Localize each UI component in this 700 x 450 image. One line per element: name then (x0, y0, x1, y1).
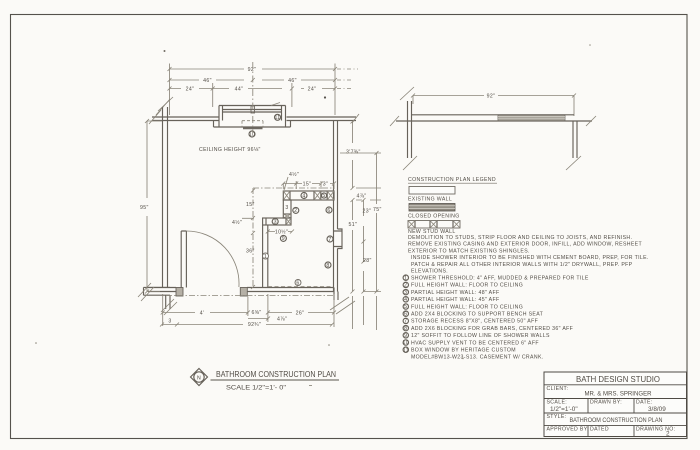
svg-text:15": 15" (303, 181, 312, 187)
svg-text:8: 8 (326, 263, 329, 269)
svg-text:DATE:: DATE: (636, 400, 653, 406)
svg-text:FULL HEIGHT WALL: FLOOR TO CEI: FULL HEIGHT WALL: FLOOR TO CEILING (411, 304, 523, 310)
svg-text:92¾": 92¾" (248, 322, 261, 328)
svg-text:STYLE:: STYLE: (547, 414, 567, 420)
svg-text:HVAC SUPPLY VENT TO BE CENTERE: HVAC SUPPLY VENT TO BE CENTERED 6" AFF (411, 340, 539, 346)
svg-text:36": 36" (246, 249, 255, 255)
svg-text:10½": 10½" (275, 228, 288, 235)
svg-text:75": 75" (373, 207, 382, 213)
svg-text:46": 46" (288, 78, 297, 84)
svg-text:51": 51" (349, 222, 358, 228)
svg-text:MR. & MRS. SPRINGER: MR. & MRS. SPRINGER (585, 390, 652, 397)
svg-text:5: 5 (322, 193, 325, 199)
svg-text:4⅞": 4⅞" (277, 317, 287, 323)
svg-text:92": 92" (487, 93, 496, 99)
svg-text:10: 10 (403, 340, 409, 346)
svg-text:4': 4' (200, 310, 205, 316)
svg-text:12" SOFFIT TO FOLLOW LINE OF S: 12" SOFFIT TO FOLLOW LINE OF SHOWER WALL… (411, 333, 550, 339)
svg-text:DRAWN BY:: DRAWN BY: (590, 400, 622, 406)
svg-text:APPROVED BY:: APPROVED BY: (547, 427, 590, 433)
svg-text:2: 2 (404, 283, 407, 289)
svg-text:4: 4 (404, 297, 407, 303)
svg-text:FULL HEIGHT WALL: FLOOR TO CEI: FULL HEIGHT WALL: FLOOR TO CEILING (411, 283, 523, 289)
svg-text:EXISTING WALL: EXISTING WALL (408, 197, 452, 203)
svg-text:1: 1 (264, 254, 267, 260)
svg-text:CONSTRUCTION PLAN LEGEND: CONSTRUCTION PLAN LEGEND (408, 177, 496, 183)
svg-text:4: 4 (302, 193, 305, 199)
svg-text:1/2"=1'-0": 1/2"=1'-0" (550, 406, 578, 413)
svg-text:23": 23" (363, 209, 372, 215)
svg-text:3: 3 (404, 290, 407, 296)
svg-text:DEMOLITION TO STUDS, STRIP FLO: DEMOLITION TO STUDS, STRIP FLOOR AND CEI… (408, 235, 632, 241)
svg-text:3": 3" (323, 181, 328, 187)
svg-text:PATCH & REPAIR ALL OTHER INTER: PATCH & REPAIR ALL OTHER INTERIOR WALLS … (411, 262, 633, 268)
svg-text:BATH DESIGN STUDIO: BATH DESIGN STUDIO (576, 375, 660, 384)
svg-text:5: 5 (404, 304, 407, 310)
svg-text:11: 11 (403, 347, 409, 353)
svg-text:N: N (197, 376, 201, 382)
svg-text:46": 46" (203, 78, 212, 84)
svg-text:92": 92" (248, 67, 257, 73)
svg-text:4½": 4½" (232, 219, 242, 226)
svg-text:24": 24" (308, 86, 317, 92)
svg-text:PARTIAL HEIGHT WALL: 48" AFF: PARTIAL HEIGHT WALL: 48" AFF (411, 290, 500, 296)
svg-text:6⅝": 6⅝" (251, 310, 261, 316)
svg-text:3: 3 (274, 219, 277, 225)
svg-text:EXTERIOR TO MATCH EXISTING SHI: EXTERIOR TO MATCH EXISTING SHINGLES. (408, 248, 530, 254)
svg-text:44": 44" (235, 86, 244, 92)
svg-text:15": 15" (246, 202, 255, 208)
svg-text:CLIENT:: CLIENT: (547, 386, 569, 392)
svg-text:10: 10 (249, 132, 255, 138)
svg-text:CLOSED OPENING: CLOSED OPENING (408, 214, 460, 220)
svg-text:26": 26" (296, 310, 305, 316)
svg-text:ADD 2X4 BLOCKING TO SUPPORT BE: ADD 2X4 BLOCKING TO SUPPORT BENCH SEAT (411, 312, 544, 318)
svg-text:BATHROOM CONSTRUCTION PLAN: BATHROOM CONSTRUCTION PLAN (570, 418, 663, 424)
svg-text:9: 9 (282, 236, 285, 242)
svg-text:9: 9 (404, 333, 407, 339)
svg-text:3: 3 (285, 205, 288, 211)
svg-text:CEILING HEIGHT 96⅛": CEILING HEIGHT 96⅛" (199, 147, 261, 153)
svg-text:28": 28" (363, 258, 372, 264)
svg-text:ELEVATIONS.: ELEVATIONS. (411, 269, 448, 275)
svg-text:1: 1 (404, 275, 407, 281)
svg-text:7: 7 (404, 319, 407, 325)
svg-text:SHOWER THRESHOLD: 4" AFF, MUDD: SHOWER THRESHOLD: 4" AFF, MUDDED & PREPA… (411, 276, 589, 282)
svg-text:3'7⅜": 3'7⅜" (346, 150, 361, 156)
svg-text:6: 6 (296, 280, 299, 286)
svg-text:8: 8 (404, 326, 407, 332)
svg-text:PARTIAL HEIGHT WALL: 45" AFF: PARTIAL HEIGHT WALL: 45" AFF (411, 297, 500, 303)
svg-text:95": 95" (140, 205, 149, 211)
svg-text:6: 6 (404, 311, 407, 317)
svg-text:7: 7 (328, 237, 331, 243)
svg-text:REMOVE EXISTING CASING AND EXT: REMOVE EXISTING CASING AND EXTERIOR DOOR… (408, 242, 642, 248)
svg-text:ADD 2X6 BLOCKING FOR GRAB BARS: ADD 2X6 BLOCKING FOR GRAB BARS, CENTERED… (411, 326, 573, 332)
svg-text:6: 6 (327, 208, 330, 214)
svg-text:2: 2 (666, 430, 670, 437)
svg-text:11: 11 (274, 115, 280, 121)
svg-text:STORAGE RECESS 8"X8", CENTERED: STORAGE RECESS 8"X8", CENTERED 50" AFF (411, 319, 538, 325)
svg-text:4½": 4½" (289, 171, 299, 178)
svg-text:3/8/09: 3/8/09 (648, 406, 666, 413)
svg-text:DATED: DATED (590, 427, 609, 433)
svg-text:MODEL#BW13-W23-S13. CASEMENT W: MODEL#BW13-W23-S13. CASEMENT W/ CRANK. (411, 355, 544, 361)
svg-text:SCALE 1/2"=1'- 0": SCALE 1/2"=1'- 0" (226, 385, 286, 392)
svg-text:SCALE:: SCALE: (547, 400, 568, 406)
svg-text:BOX WINDOW BY HERITAGE CUSTOM: BOX WINDOW BY HERITAGE CUSTOM (411, 348, 516, 354)
svg-text:3: 3 (168, 318, 171, 324)
svg-text:2: 2 (294, 208, 297, 214)
svg-text:BATHROOM CONSTRUCTION PLAN: BATHROOM CONSTRUCTION PLAN (216, 370, 336, 379)
svg-text:24": 24" (186, 86, 195, 92)
svg-text:INSIDE SHOWER INTERIOR TO BE F: INSIDE SHOWER INTERIOR TO BE FINISHED WI… (411, 255, 649, 261)
